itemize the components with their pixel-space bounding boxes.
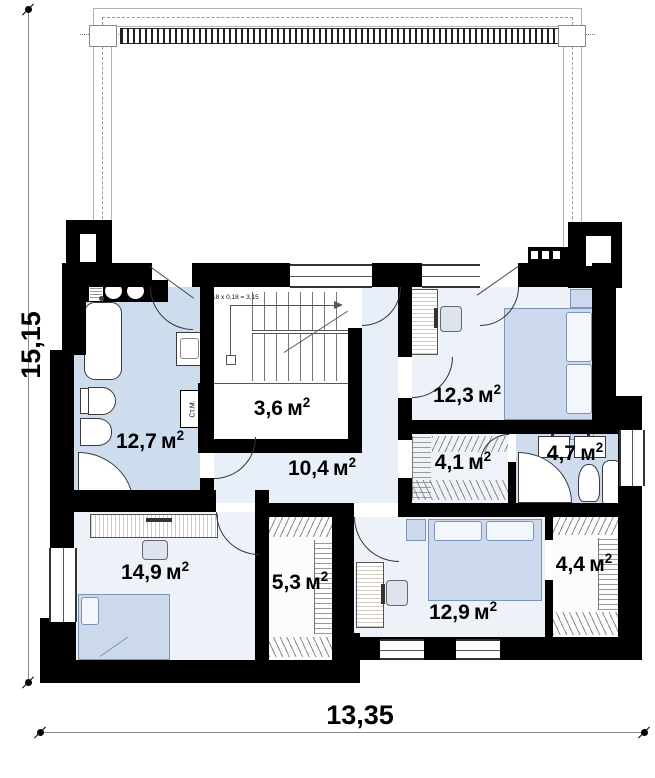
stairs-landing-line [252,333,348,334]
chimney-flue [586,236,611,266]
wall-segment [192,263,290,287]
shelf-hatch [269,637,332,657]
stairs-annotation: 18 x 0,18 = 3,15 [212,294,259,301]
bidet-icon [80,418,112,446]
wall-segment [372,263,422,287]
window [49,548,77,622]
pillow-icon [81,597,99,625]
vent-flue [553,251,560,259]
window [456,639,500,660]
room-area-label: 12,3 м2 [433,382,501,408]
pillow-icon [566,312,592,362]
room-area-label: 12,7 м2 [116,428,184,454]
vent-flue [542,251,549,259]
wall-segment [592,263,616,410]
room-area-label: 4,4 м2 [556,551,612,577]
wall-segment [74,490,216,512]
wall-segment [40,660,360,683]
wall-segment [398,434,412,440]
storage-top-line [214,383,348,384]
pillow-icon [486,521,534,541]
window [380,639,424,660]
dimension-line-horizontal [40,732,645,733]
wall-segment [62,263,86,355]
stairs-start-marker [226,355,236,365]
dimension-width-label: 13,35 [290,700,430,731]
room-area-label: 4,7 м2 [547,440,603,466]
wall-segment [398,420,642,434]
room-area-label: 14,9 м2 [121,559,189,585]
pillow-icon [434,521,482,541]
railing-post-right [558,25,586,47]
stairs-walkline [230,305,336,306]
toilet-icon [578,464,600,502]
stairs-upper-run [252,292,348,330]
chair-icon [142,540,168,560]
shelf-hatch [553,612,618,635]
roof-outline-inner [111,26,564,264]
wall-segment [398,503,642,517]
railing-post-left [89,25,117,47]
chimney-flue [80,234,96,262]
nightstand-icon [570,289,594,308]
wall-segment [508,462,516,517]
wall-segment [545,517,553,540]
window [290,264,372,288]
vanity-basin [180,338,199,359]
monitor-icon [434,308,438,328]
room-area-label: 5,3 м2 [272,569,328,595]
bathtub-faucet-icon [99,296,104,301]
dimension-height-label: 15,15 [16,290,46,400]
window [619,430,645,486]
toilet-bowl [88,387,116,415]
pillow-icon [566,364,592,414]
bathtub-icon [84,302,122,380]
wall-segment [398,478,412,517]
shelf-hatch [412,480,508,500]
nightstand-icon [406,519,426,541]
wall-segment [545,580,553,637]
chair-icon [386,580,408,606]
room-area-label: 10,4 м2 [288,455,356,481]
shelf-hatch [269,517,332,537]
monitor-icon [381,584,385,604]
room-area-label: 4,1 м2 [435,449,491,475]
wall-segment [508,420,516,434]
wall-segment [398,263,412,357]
window [422,264,480,288]
desk-icon [356,562,384,628]
floor-plan: 18 x 0,18 = 3,15 Ст.М. [0,0,655,778]
room-area-label: 3,6 м2 [254,395,310,421]
stairs-landing-line [252,330,348,331]
wall-segment [332,503,354,683]
monitor-icon [146,518,172,522]
chair-icon [440,306,462,332]
shelf-hatch [553,517,618,535]
room-area-label: 12,9 м2 [429,599,497,625]
stairs-walkline [230,305,231,359]
wall-segment [348,328,362,453]
terrace-railing [120,28,562,44]
stairs-direction-arrow [334,301,343,309]
vent-flue [531,251,538,259]
